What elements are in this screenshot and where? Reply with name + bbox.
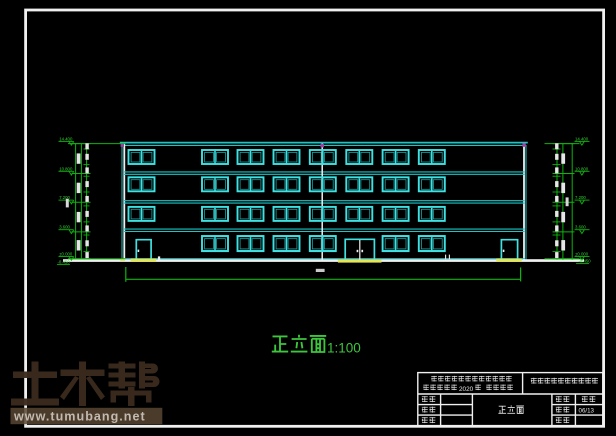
svg-text:±0.000: ±0.000	[575, 252, 589, 257]
svg-text:06/13: 06/13	[579, 407, 595, 414]
svg-text:-0.450: -0.450	[579, 259, 592, 264]
svg-text:-0.450: -0.450	[58, 259, 71, 264]
svg-text:3.600: 3.600	[575, 225, 586, 230]
svg-text:10.800: 10.800	[59, 166, 73, 171]
svg-text:2020: 2020	[459, 386, 474, 393]
svg-text:www.tumubang.net: www.tumubang.net	[13, 410, 146, 424]
svg-text:7.200: 7.200	[59, 195, 70, 200]
svg-text:1:100: 1:100	[327, 341, 361, 356]
svg-text:14.400: 14.400	[575, 136, 589, 141]
svg-text:±0.000: ±0.000	[59, 252, 73, 257]
svg-text:3.600: 3.600	[59, 225, 70, 230]
svg-text:14.400: 14.400	[59, 136, 73, 141]
svg-text:10.800: 10.800	[575, 166, 589, 171]
svg-text:7.200: 7.200	[575, 195, 586, 200]
